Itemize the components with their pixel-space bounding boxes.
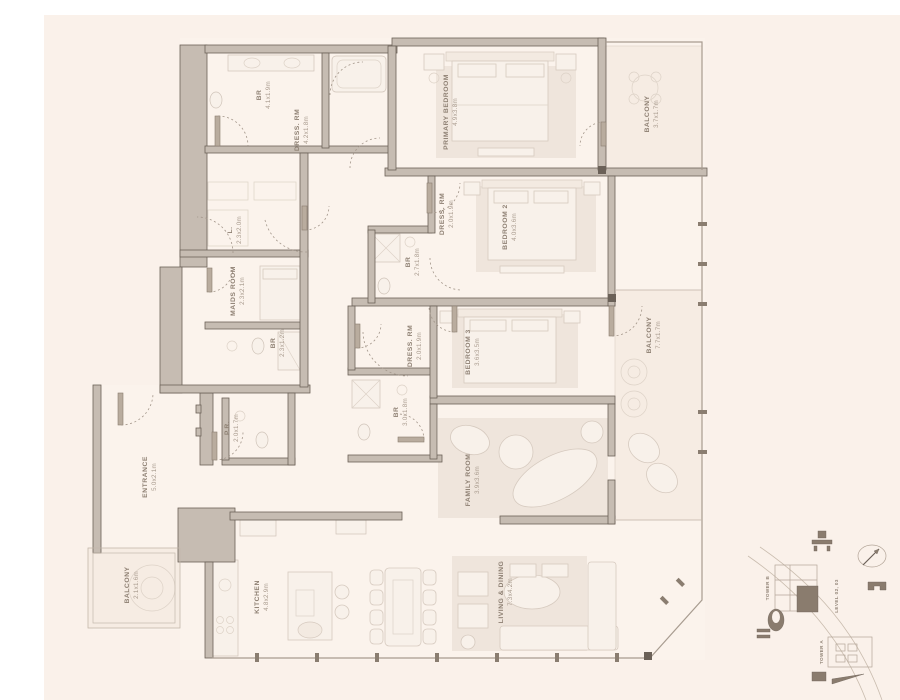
svg-text:2.1x1.6m: 2.1x1.6m	[133, 571, 140, 599]
compass-icon	[858, 545, 886, 567]
svg-text:2.0x1.9m: 2.0x1.9m	[416, 332, 423, 360]
svg-text:3.6x3.5m: 3.6x3.5m	[474, 338, 481, 366]
svg-text:2.7x1.8m: 2.7x1.8m	[414, 248, 421, 276]
svg-text:TOWER A: TOWER A	[819, 640, 824, 665]
svg-text:LEVEL 02, 03: LEVEL 02, 03	[834, 579, 839, 613]
marina-icon	[868, 582, 886, 590]
svg-text:BALCONY: BALCONY	[646, 316, 653, 353]
svg-text:2.0x1.7m: 2.0x1.7m	[233, 414, 240, 442]
svg-text:BEDROOM 2: BEDROOM 2	[502, 204, 509, 250]
svg-text:4.0x3.6m: 4.0x3.6m	[511, 213, 518, 241]
svg-text:2.3x1.2m: 2.3x1.2m	[279, 329, 286, 357]
bench-icon	[812, 531, 832, 551]
svg-text:BALCONY: BALCONY	[644, 95, 651, 132]
tower-a-label: TOWER A	[819, 640, 824, 665]
svg-text:LIVING & DINING: LIVING & DINING	[498, 561, 505, 624]
pool-icon	[757, 609, 784, 638]
svg-text:2.0x1.9m: 2.0x1.9m	[448, 200, 455, 228]
svg-text:BALCONY: BALCONY	[124, 566, 131, 603]
tower-b-label: TOWER B	[765, 576, 770, 601]
svg-text:4.2x1.8m: 4.2x1.8m	[303, 116, 310, 144]
svg-text:PRIMARY BEDROOM: PRIMARY BEDROOM	[443, 74, 450, 150]
svg-text:5.0x2.1m: 5.0x2.1m	[151, 463, 158, 491]
svg-text:3.9x3.6m: 3.9x3.6m	[474, 466, 481, 494]
level-label: LEVEL 02, 03	[834, 579, 839, 613]
svg-text:P.R.: P.R.	[224, 421, 231, 435]
svg-text:4.8x2.9m: 4.8x2.9m	[263, 583, 270, 611]
unit-location-highlight	[797, 586, 818, 612]
svg-text:MAIDS ROOM: MAIDS ROOM	[230, 266, 237, 316]
svg-text:4.1x1.9m: 4.1x1.9m	[265, 81, 272, 109]
svg-text:7.7x1.7m: 7.7x1.7m	[655, 321, 662, 349]
svg-text:KITCHEN: KITCHEN	[254, 580, 261, 614]
svg-text:3.7x1.7m: 3.7x1.7m	[653, 100, 660, 128]
svg-text:3.0x1.8m: 3.0x1.8m	[402, 398, 409, 426]
svg-text:DRESS. RM: DRESS. RM	[439, 193, 446, 235]
svg-text:L.: L.	[227, 226, 234, 233]
tower-b-footprint	[775, 565, 818, 612]
svg-text:BR: BR	[405, 257, 412, 268]
svg-text:2.3x2.1m: 2.3x2.1m	[239, 277, 246, 305]
floor-plan-page: BR 4.1x1.9m DRESS. RM 4.2x1.8m PRIMARY B…	[0, 0, 900, 700]
site-key-map: TOWER B LEVEL 02, 03 TOWER A	[748, 531, 886, 700]
svg-text:TOWER B: TOWER B	[765, 576, 770, 601]
svg-text:DRESS. RM: DRESS. RM	[294, 109, 301, 151]
svg-text:BR: BR	[256, 90, 263, 101]
svg-text:BEDROOM 3: BEDROOM 3	[465, 329, 472, 375]
svg-text:4.9x3.8m: 4.9x3.8m	[452, 98, 459, 126]
svg-text:FAMILY ROOM: FAMILY ROOM	[465, 454, 472, 507]
floor-plan-canvas: BR 4.1x1.9m DRESS. RM 4.2x1.8m PRIMARY B…	[0, 0, 900, 700]
svg-text:2.3x2.0m: 2.3x2.0m	[236, 216, 243, 244]
svg-text:DRESS. RM: DRESS. RM	[407, 325, 414, 367]
svg-text:BR: BR	[393, 407, 400, 418]
svg-text:BR: BR	[270, 338, 277, 349]
svg-text:7.3x4.2m: 7.3x4.2m	[507, 578, 514, 606]
svg-text:ENTRANCE: ENTRANCE	[142, 456, 149, 498]
